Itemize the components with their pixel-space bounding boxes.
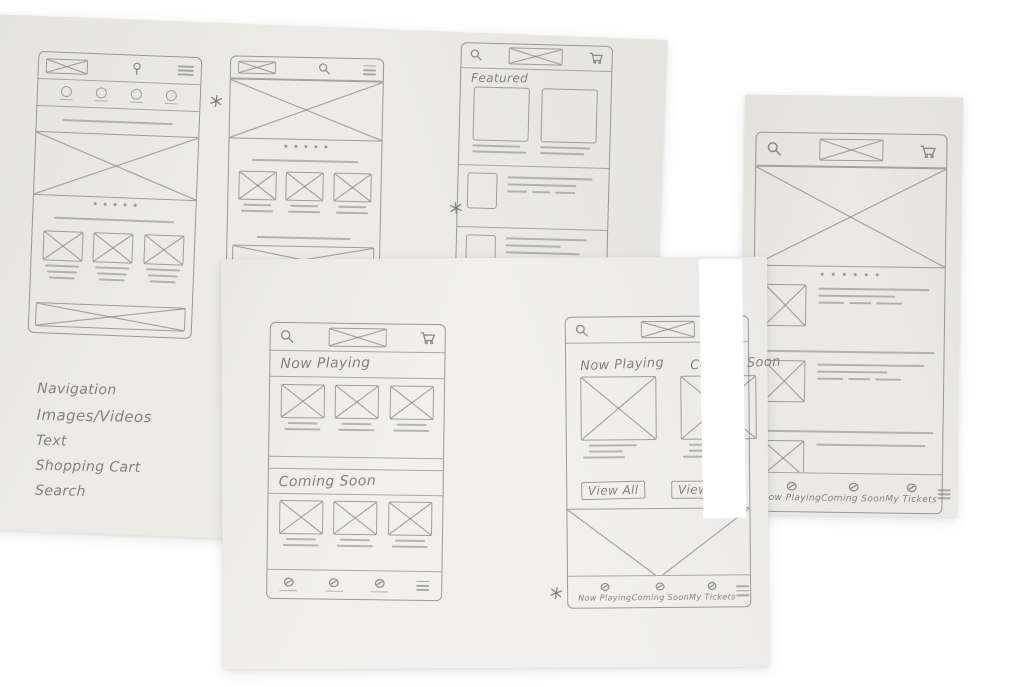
nav-label: Coming Soon — [632, 592, 690, 602]
hamburger-menu-icon — [736, 586, 749, 596]
wireframe-sections-grid: Now Playing Coming Soon — [266, 322, 446, 601]
thumbnail-row — [228, 167, 381, 232]
thumbnail-card — [142, 234, 184, 284]
bottom-nav — [267, 569, 441, 600]
image-placeholder — [541, 88, 598, 143]
search-icon — [470, 49, 483, 62]
movie-card — [389, 386, 434, 433]
image-placeholder — [467, 172, 498, 209]
shopping-cart-icon — [919, 143, 936, 158]
list-item — [754, 280, 945, 353]
movie-card — [333, 501, 378, 548]
annotation-item: Search — [35, 483, 151, 501]
logo-placeholder — [641, 321, 695, 338]
nav-item-my-tickets: My Tickets — [885, 483, 937, 506]
location-pin-icon — [132, 62, 143, 76]
hero-image-placeholder — [755, 166, 946, 269]
hamburger-menu-icon — [178, 65, 194, 76]
movie-card — [280, 384, 325, 431]
nav-item-coming-soon: Coming Soon — [821, 482, 885, 505]
logo-placeholder — [819, 139, 883, 162]
nav-icon — [707, 581, 717, 590]
image-placeholder — [92, 232, 133, 264]
thumbnail-card — [333, 173, 372, 215]
nav-item — [370, 578, 388, 593]
search-icon — [280, 329, 295, 344]
hero-image-placeholder — [34, 131, 198, 201]
wireframe-list-detail: Now Playing Coming Soon My Tickets — [750, 132, 947, 515]
image-placeholder — [387, 502, 431, 537]
nav-icon — [600, 582, 610, 591]
image-placeholder — [238, 171, 277, 201]
list-item — [752, 432, 943, 475]
banner-placeholder — [35, 302, 186, 332]
image-placeholder — [580, 376, 657, 441]
annotation-item: Navigation — [37, 381, 153, 399]
movie-card — [580, 376, 655, 459]
thumbnail-card — [285, 172, 324, 214]
featured-cards-row — [459, 86, 611, 168]
category-icon — [95, 87, 109, 102]
image-placeholder — [42, 230, 83, 262]
search-icon — [318, 62, 331, 75]
nav-item — [325, 577, 343, 592]
logo-placeholder — [508, 48, 562, 66]
bottom-nav: Now Playing Coming Soon My Tickets — [751, 472, 942, 514]
nav-label: Coming Soon — [821, 494, 885, 505]
logo-placeholder — [328, 327, 386, 347]
category-icon — [130, 88, 144, 103]
list-item — [753, 352, 944, 433]
wireframe-home-hero — [226, 55, 385, 276]
nav-icon — [785, 481, 797, 491]
thumbnail-card — [41, 230, 83, 280]
nav-item-my-tickets: My Tickets — [689, 581, 736, 601]
thumbnail-row — [30, 225, 195, 308]
search-icon — [766, 141, 782, 157]
annotation-item: Shopping Cart — [35, 458, 151, 476]
annotation-list: Navigation Images/Videos Text Shopping C… — [35, 381, 153, 510]
nav-icon — [905, 483, 917, 493]
nav-icon — [328, 577, 339, 587]
star-doodle — [208, 92, 225, 113]
category-icon — [60, 86, 74, 101]
nav-item — [279, 576, 297, 591]
nav-icon — [283, 577, 294, 587]
shopping-cart-icon — [589, 52, 604, 65]
nav-item-now-playing: Now Playing — [761, 481, 821, 504]
featured-card — [540, 88, 598, 155]
hamburger-menu-icon — [937, 489, 950, 499]
movie-card — [278, 500, 323, 547]
featured-card — [472, 86, 530, 153]
star-doodle — [448, 199, 464, 219]
image-placeholder — [335, 385, 379, 420]
nav-icon — [847, 482, 859, 492]
thumbnail-row — [267, 494, 442, 572]
annotation-item: Images/Videos — [36, 406, 152, 426]
search-icon — [575, 323, 589, 337]
thumbnail-card — [238, 171, 277, 213]
image-placeholder — [333, 173, 372, 203]
hero-image-placeholder — [230, 79, 383, 142]
movie-card — [387, 502, 432, 549]
wireframe-featured: Featured — [455, 42, 613, 278]
nav-item-now-playing: Now Playing — [578, 582, 632, 602]
image-placeholder — [389, 386, 433, 421]
section-title: Coming Soon — [279, 473, 377, 490]
section-title: Now Playing — [280, 355, 370, 372]
paper-edge-gap — [699, 259, 747, 519]
wireframe-home-categories — [28, 51, 203, 339]
nav-label: My Tickets — [689, 592, 736, 601]
bottom-nav: Now Playing Coming Soon My Tickets — [568, 574, 750, 608]
annotation-item: Text — [36, 433, 152, 451]
nav-label: Now Playing — [761, 493, 821, 504]
movie-card — [334, 385, 379, 432]
thumbnail-card — [92, 232, 134, 282]
list-item — [457, 164, 609, 230]
hamburger-menu-icon — [363, 65, 376, 75]
photo-of-wireframe-sketches: Featured — [0, 0, 1024, 687]
hamburger-menu-icon — [416, 581, 429, 591]
image-placeholder — [280, 384, 324, 419]
nav-label: My Tickets — [885, 495, 937, 506]
image-placeholder — [333, 501, 377, 536]
image-placeholder — [278, 500, 322, 535]
thumbnail-row — [269, 377, 444, 459]
image-placeholder — [143, 234, 184, 266]
image-placeholder — [285, 172, 324, 202]
section-title: Featured — [471, 70, 528, 84]
nav-icon — [655, 581, 665, 590]
nav-item-coming-soon: Coming Soon — [631, 581, 689, 602]
view-all-button: View All — [581, 481, 645, 501]
image-placeholder — [472, 86, 529, 141]
nav-label: Now Playing — [578, 593, 631, 602]
logo-placeholder — [238, 61, 276, 75]
image-placeholder — [764, 284, 807, 327]
category-icon — [165, 90, 179, 105]
logo-placeholder — [46, 58, 89, 75]
nav-icon — [374, 578, 385, 588]
shopping-cart-icon — [420, 331, 436, 345]
image-placeholder — [762, 440, 804, 475]
